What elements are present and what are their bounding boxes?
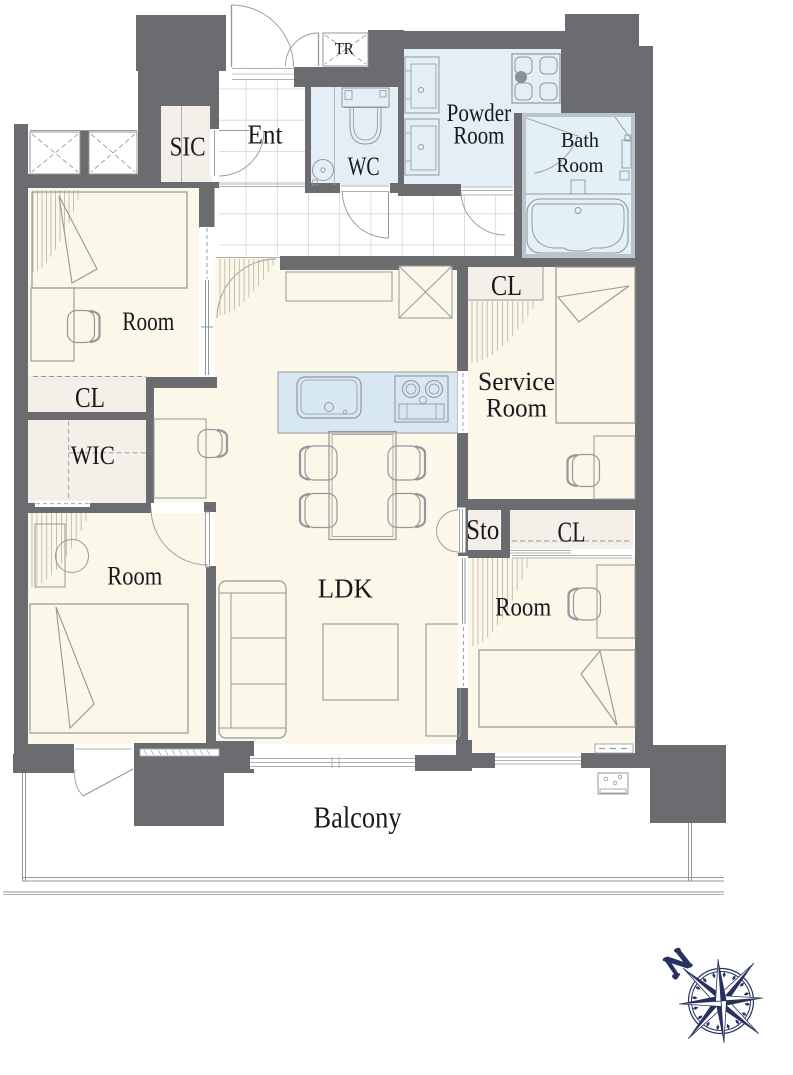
svg-text:CL: CL: [75, 382, 105, 414]
svg-text:WIC: WIC: [71, 441, 115, 470]
svg-text:Room: Room: [453, 123, 504, 150]
svg-text:WC: WC: [348, 152, 380, 181]
svg-text:SIC: SIC: [170, 132, 206, 162]
svg-text:CL: CL: [491, 270, 522, 302]
svg-text:CL: CL: [558, 517, 586, 549]
svg-text:Room: Room: [122, 307, 174, 336]
svg-text:Room: Room: [495, 593, 551, 622]
svg-text:Room: Room: [107, 562, 162, 591]
svg-text:Bath: Bath: [561, 128, 599, 152]
svg-text:LDK: LDK: [318, 573, 373, 604]
svg-text:Ent: Ent: [248, 120, 283, 150]
svg-text:TR: TR: [335, 39, 355, 58]
svg-text:Room: Room: [557, 153, 604, 177]
svg-text:Balcony: Balcony: [314, 800, 402, 835]
svg-text:Service: Service: [478, 366, 555, 396]
svg-text:Room: Room: [486, 393, 547, 423]
svg-text:Sto: Sto: [466, 515, 499, 546]
